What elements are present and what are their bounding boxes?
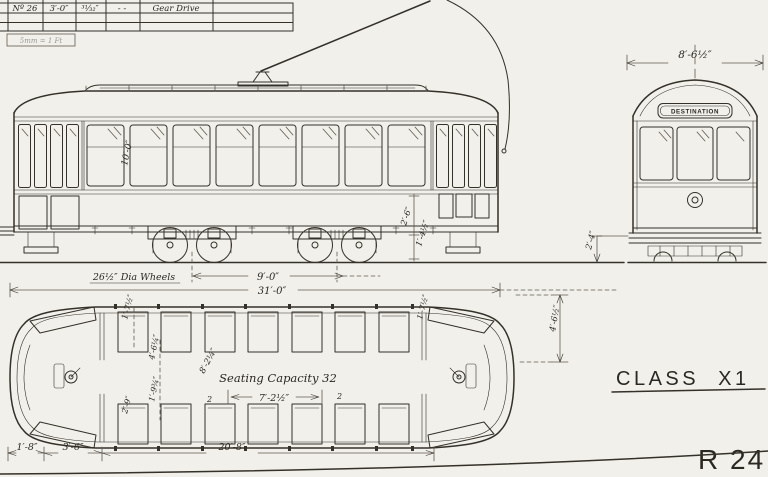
sheet-number: R 24 — [698, 444, 765, 475]
hatched-panel — [475, 194, 489, 218]
door-hatch — [428, 422, 494, 448]
class-label: CLASS X1 — [616, 368, 750, 390]
title-block-table: Nº 26 3′-0″ ³¹⁄₃₂″ - - Gear Drive — [0, 0, 293, 31]
drawing-sheet: Nº 26 3′-0″ ³¹⁄₃₂″ - - Gear Drive 5mm = … — [0, 0, 768, 477]
dim-diagonal: 8′-2¼″ — [197, 346, 220, 376]
dim-body-width: 4′-6½″ — [547, 303, 563, 333]
truck — [293, 226, 381, 263]
note-wheel-diameter: 26½″ Dia Wheels — [92, 272, 175, 283]
sheet-annotations: CLASS X1 R 24 — [0, 368, 768, 475]
destination-sign-text: DESTINATION — [671, 109, 719, 116]
hatched-panel — [51, 196, 79, 229]
door-hatch — [30, 307, 96, 333]
dim-truck-centres: 9′-0″ — [257, 272, 279, 283]
dim-bottom-1: 1′-8″ — [16, 442, 37, 453]
dim-bottom-2: 3′-6″ — [62, 442, 83, 453]
hatched-panel — [19, 196, 47, 229]
truck — [148, 226, 236, 263]
trolley-pole — [261, 1, 430, 71]
dim-overall-length: 31′-0″ — [258, 286, 287, 297]
dim-step-upper: 2′-6″ — [399, 205, 415, 228]
dim-plan-3: 1′-9¾″ — [147, 376, 161, 403]
dim-aisle: 7′-2½″ — [259, 393, 290, 404]
scale-note-box: 5mm = 1 Ft — [7, 34, 75, 46]
dim-step-lower: 1′-4½″ — [413, 218, 432, 248]
tram-drawing-canvas: Nº 26 3′-0″ ³¹⁄₃₂″ - - Gear Drive 5mm = … — [0, 0, 768, 477]
title-cell-dim2: ³¹⁄₃₂″ — [81, 4, 98, 13]
hatched-panel — [439, 194, 453, 218]
end-elevation: 8′-6½″ DESTINATION 2′-4″ — [584, 45, 766, 263]
title-cell-number: Nº 26 — [12, 4, 39, 14]
seating-capacity-note: Seating Capacity 32 — [219, 371, 337, 385]
plan-view: 1′-7½″ 4′-6¼″ 1′-9¾″ 2′-9″ 1′-7½″ 8′-2¼″… — [8, 294, 568, 461]
dim-interior-height: 10′-0″ — [120, 139, 135, 167]
sheet-edge-line — [0, 451, 768, 474]
title-cell-drive: Gear Drive — [152, 4, 199, 14]
side-elevation: 10′-0″ 26½″ Dia Wheels 9′-0″ 31′-0″ 2′-6… — [0, 0, 624, 297]
dim-bottom-3: 20′-8″ — [217, 442, 245, 453]
hatched-panel — [456, 194, 472, 217]
seat-mark-1: 2 — [206, 395, 212, 404]
title-cell-blank: - - — [118, 4, 127, 14]
scale-note: 5mm = 1 Ft — [20, 37, 63, 45]
dim-plan-4: 2′-9″ — [120, 395, 134, 415]
seat-mark-2: 2 — [336, 392, 342, 401]
door-hatch — [428, 307, 494, 333]
trolley-rope — [447, 0, 509, 149]
dim-plan-2: 4′-6¼″ — [147, 334, 161, 362]
title-cell-dim1: 3′-0″ — [50, 4, 70, 14]
